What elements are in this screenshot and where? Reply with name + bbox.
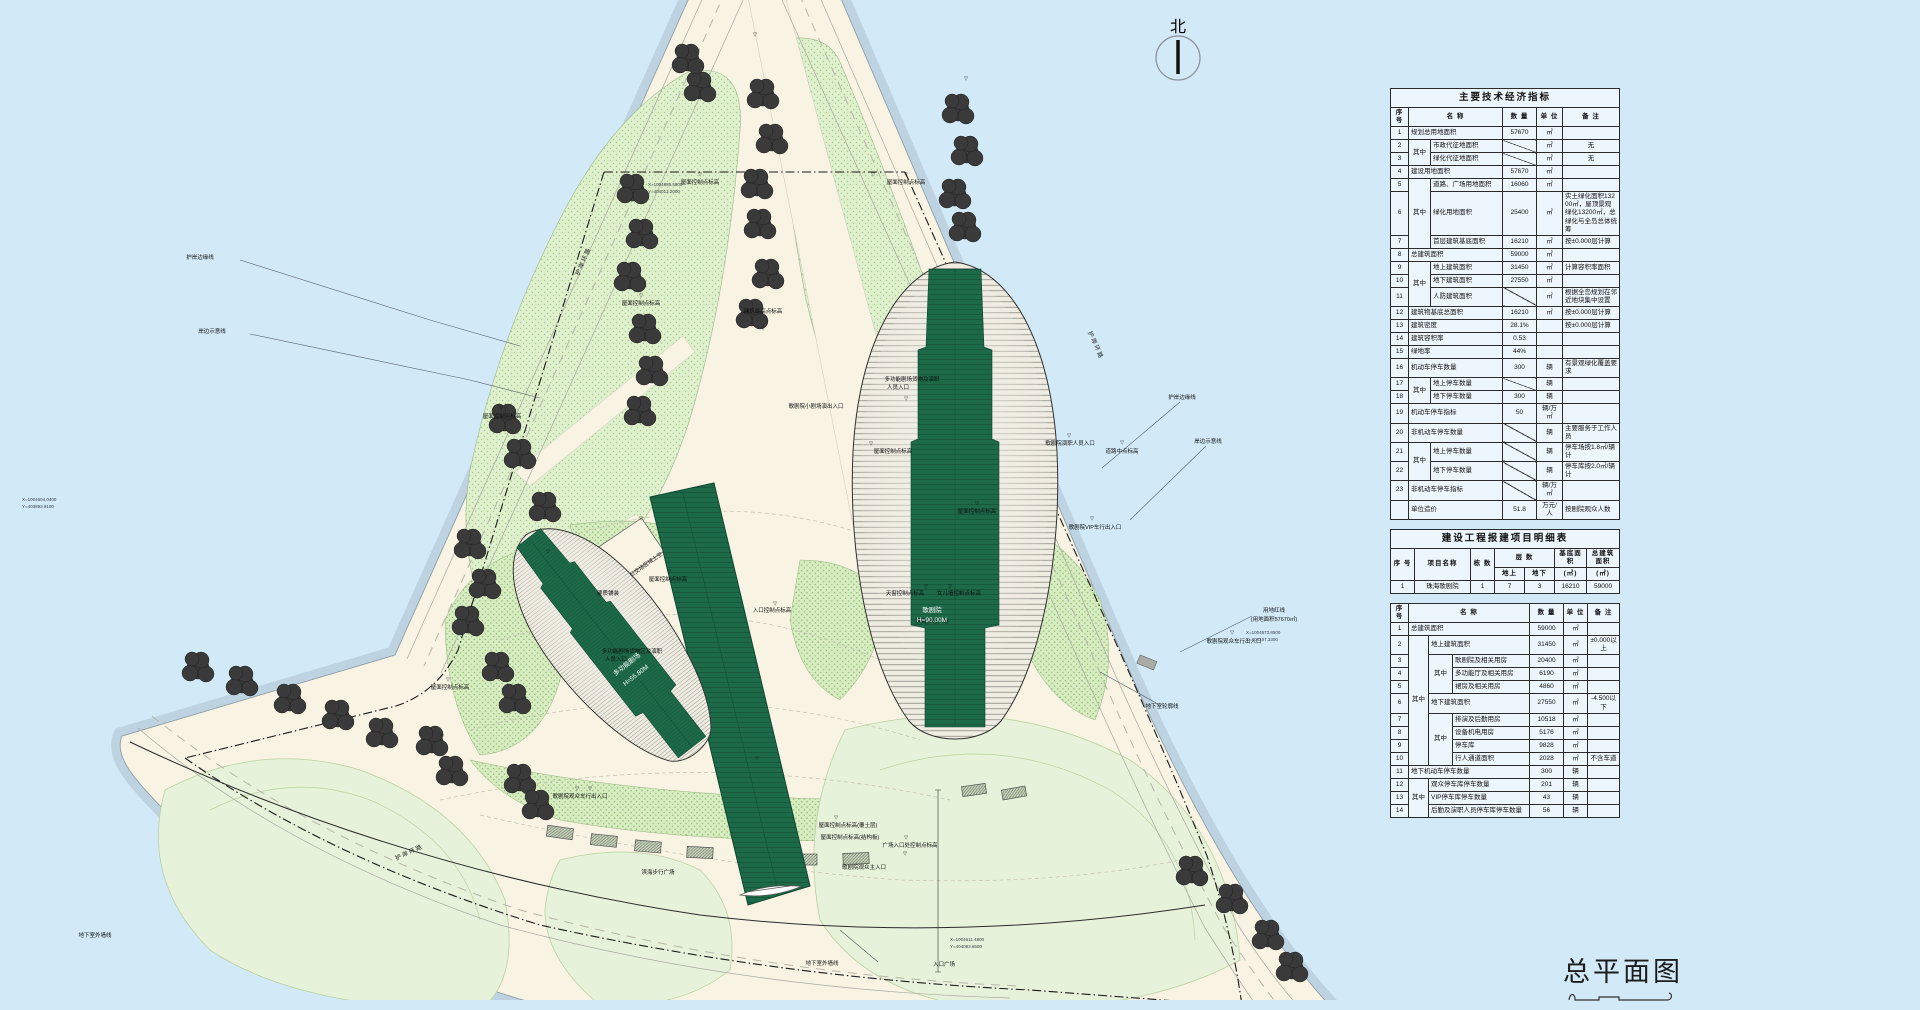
plan-label: 屋面控制点标高(覆土层) (819, 821, 878, 829)
table-cell: 地下建筑面积 (1429, 694, 1530, 713)
table-cell: 按剧院观众人数 (1563, 500, 1620, 519)
plan-label: Y=403893.9100 (22, 504, 54, 509)
table-cell: 13 (1391, 320, 1409, 333)
table-cell (1588, 623, 1620, 636)
table-cell: 建设用地面积 (1409, 166, 1503, 179)
table-cell: 单 位 (1564, 603, 1588, 622)
table-cell: 12 (1391, 307, 1409, 320)
table-cell: ㎡ (1564, 726, 1588, 739)
table-cell: ㎡ (1537, 127, 1563, 140)
table-cell: 1 (1471, 580, 1495, 593)
north-arrow: 北 (1156, 18, 1200, 80)
table-cell: 规划总用地面积 (1409, 127, 1503, 140)
table-cell (1563, 404, 1620, 423)
elevation-marker: ▽ (588, 786, 592, 792)
table-cell: 绿化用地面积 (1431, 192, 1503, 236)
table-cell: 辆 (1537, 359, 1563, 378)
plan-label: 道路中点标高 (1105, 447, 1139, 455)
table-cell: 19 (1391, 404, 1409, 423)
elevation-marker: ▽ (753, 32, 757, 38)
plan-label: H=90.00M (917, 617, 947, 624)
table-cell (1503, 481, 1537, 500)
table-cell: ㎡ (1564, 655, 1588, 668)
table-cell: 计算容积率面积 (1563, 261, 1620, 274)
table-cell: 实土绿化面积13200㎡，屋顶景观绿化13200㎡，总绿化与全岛总体统筹 (1563, 192, 1620, 236)
elevation-marker: ▽ (761, 326, 765, 332)
elevation-marker: ▽ (1120, 440, 1124, 446)
table-cell: 59000 (1530, 623, 1564, 636)
table-cell: 地下停车数量 (1431, 391, 1503, 404)
table-cell: 27550 (1530, 694, 1564, 713)
table-cell: 16210 (1503, 307, 1537, 320)
indicator-tables: 主要技术经济指标序 号名 称数 量单 位备 注1规划总用地面积57670㎡2其中… (1390, 88, 1620, 827)
plan-label: 入口控制点标高 (753, 606, 792, 614)
area-breakdown-table: 序 号名 称数 量单 位备 注1总建筑面积59000㎡2其中地上建筑面积3145… (1390, 603, 1620, 818)
table-cell: 20 (1391, 423, 1409, 442)
table-title: 主要技术经济指标 (1391, 89, 1620, 108)
elevation-marker: ▽ (834, 815, 838, 821)
table-cell: 数 量 (1530, 603, 1564, 622)
table-cell: 层 数 (1495, 548, 1555, 567)
table-cell (1563, 127, 1620, 140)
plan-label: 歌剧院VIP车行出入口 (1069, 523, 1122, 531)
elevation-marker: ▽ (903, 851, 907, 857)
table-cell: 18 (1391, 391, 1409, 404)
plan-label: X=1004604.0400 (22, 497, 57, 502)
table-cell: 有景观绿化覆盖要求 (1563, 359, 1620, 378)
plan-label: 女儿墙控制点标高 (937, 589, 982, 597)
plan-label: (用地面积57670㎡) (1251, 615, 1298, 623)
table-cell: 2 (1391, 140, 1409, 153)
table-cell: 6190 (1530, 668, 1564, 681)
table-cell: 其中 (1409, 140, 1431, 166)
drawing-title: 总平面图 (1563, 950, 1683, 989)
table-cell: 设备机电用房 (1453, 726, 1530, 739)
north-label: 北 (1170, 18, 1186, 36)
main-indicators-table: 主要技术经济指标序 号名 称数 量单 位备 注1规划总用地面积57670㎡2其中… (1390, 88, 1620, 520)
table-cell: 1 (1391, 580, 1415, 593)
table-cell: 辆 (1564, 765, 1588, 778)
table-cell: 其中 (1429, 655, 1453, 694)
table-cell: 20400 (1530, 655, 1564, 668)
plan-label: 地下室外墙线 (78, 931, 112, 939)
table-cell: 16210 (1503, 235, 1537, 248)
table-cell: 观众停车库停车数量 (1429, 778, 1530, 791)
plan-label: 滨海步行广场 (641, 868, 675, 876)
plan-label: 地下室外墙线 (805, 959, 839, 967)
table-cell: 59000 (1587, 580, 1620, 593)
table-cell: 首层建筑基底面积 (1431, 235, 1503, 248)
table-cell: ㎡ (1564, 739, 1588, 752)
title-block: 总平面图 (1563, 950, 1683, 1010)
table-cell (1588, 726, 1620, 739)
table-cell: ㎡ (1537, 287, 1563, 306)
table-cell: 根据全岛规划在邻近地块集中设置 (1563, 287, 1620, 306)
table-cell: 栋 数 (1471, 548, 1495, 580)
table-cell: 6 (1391, 694, 1409, 713)
table-cell: 15 (1391, 346, 1409, 359)
table-cell: 其中 (1429, 713, 1453, 765)
plan-label: 屋面控制点标高 (649, 575, 688, 583)
table-cell (1563, 378, 1620, 391)
table-cell: 27550 (1503, 274, 1537, 287)
table-cell: 22 (1391, 462, 1409, 481)
table-cell: 单 位 (1537, 107, 1563, 126)
elevation-marker: ▽ (773, 601, 777, 607)
table-cell: 辆 (1537, 423, 1563, 442)
plan-label: Y=404013.2000 (648, 189, 680, 194)
table-cell: 辆 (1537, 462, 1563, 481)
table-cell: 停车场按1.8㎡/辆计 (1563, 442, 1620, 461)
table-cell: 21 (1391, 442, 1409, 461)
table-cell: 地下机动车停车数量 (1409, 765, 1530, 778)
table-cell (1588, 713, 1620, 726)
table-cell: 停车库按2.0㎡/辆计 (1563, 462, 1620, 481)
table-cell (1563, 333, 1620, 346)
elevation-marker: ▽ (1090, 516, 1094, 522)
table-cell: 10 (1391, 274, 1409, 287)
table-cell (1588, 681, 1620, 694)
table-cell: 地上建筑面积 (1431, 261, 1503, 274)
elevation-marker: ▽ (667, 569, 671, 575)
elevation-marker: ▽ (975, 501, 979, 507)
table-cell: 辆/万㎡ (1537, 481, 1563, 500)
table-cell: 9 (1391, 261, 1409, 274)
table-cell: 51.8 (1503, 500, 1537, 519)
table-cell: ㎡ (1537, 179, 1563, 192)
elevation-marker: ▽ (1067, 433, 1071, 439)
elevation-marker: ▽ (924, 584, 928, 590)
table-cell: 后勤及演职人员停车库停车数量 (1429, 804, 1530, 817)
table-cell: 基底面积 (1555, 548, 1587, 567)
plan-label: 天窗控制点标高 (886, 589, 925, 597)
elevation-marker: ▽ (871, 172, 875, 178)
table-cell (1588, 668, 1620, 681)
table-cell: 10 (1391, 752, 1409, 765)
table-cell: 300 (1530, 765, 1564, 778)
plan-label: 用地红线 (1263, 606, 1286, 614)
table-cell: 11 (1391, 287, 1409, 306)
elevation-marker: ▽ (698, 172, 702, 178)
table-cell: 地上建筑面积 (1429, 636, 1530, 655)
table-cell: (㎡) (1555, 567, 1587, 580)
table-cell: 主要服务于工作人员 (1563, 423, 1620, 442)
table-cell (1503, 287, 1537, 306)
table-cell: 3 (1391, 655, 1409, 668)
plan-label: X=1004885.5800 (648, 182, 683, 187)
table-cell: 万元/人 (1537, 500, 1563, 519)
table-cell: 项目名称 (1415, 548, 1471, 580)
table-cell: 名 称 (1409, 603, 1530, 622)
table-cell: 辆 (1564, 804, 1588, 817)
table-cell: 14 (1391, 804, 1409, 817)
table-cell: 名 称 (1409, 107, 1503, 126)
table-cell: 建筑容积率 (1409, 333, 1503, 346)
table-cell: 备 注 (1563, 107, 1620, 126)
table-cell: 9828 (1530, 739, 1564, 752)
table-cell: 59000 (1503, 248, 1537, 261)
table-cell (1563, 179, 1620, 192)
plan-label: 歌剧院小剧场演出入口 (788, 402, 843, 410)
table-cell: 其中 (1409, 442, 1431, 481)
table-cell: 6 (1391, 192, 1409, 236)
plan-label: 屋面控制点标高 (622, 299, 661, 307)
plan-label: 屋面控制点标高 (483, 412, 522, 420)
table-cell: 其中 (1409, 261, 1431, 306)
plan-label: X=1004611.4800 (950, 937, 985, 942)
table-cell: 序 号 (1391, 603, 1409, 622)
table-cell: 排演及后勤用房 (1453, 713, 1530, 726)
plan-label: 建筑最高点标高 (744, 307, 783, 315)
table-cell: ㎡ (1537, 307, 1563, 320)
elevation-marker: ▽ (575, 786, 579, 792)
plan-label: 屋面控制点标高(结构板) (821, 833, 880, 841)
table-cell: 总建筑面积 (1409, 623, 1530, 636)
plan-label: 歌剧院观众主入口 (842, 863, 886, 871)
table-cell: 其中 (1409, 778, 1429, 817)
table-cell: 辆/万㎡ (1537, 404, 1563, 423)
table-cell: 57670 (1503, 127, 1537, 140)
table-cell: 3 (1391, 153, 1409, 166)
lawn (545, 852, 732, 1000)
table-cell: 0.53 (1503, 333, 1537, 346)
table-cell: 总建筑面积 (1409, 248, 1503, 261)
table-cell: 7 (1391, 713, 1409, 726)
table-cell: 10518 (1530, 713, 1564, 726)
table-cell (1503, 462, 1537, 481)
table-cell: 44% (1503, 346, 1537, 359)
table-cell: ㎡ (1564, 713, 1588, 726)
table-title: 建设工程报建项目明细表 (1391, 529, 1620, 548)
plan-label: 岸边示意线 (198, 327, 226, 335)
table-cell: 3 (1525, 580, 1555, 593)
table-cell: 28.1% (1503, 320, 1537, 333)
table-cell: 5 (1391, 179, 1409, 192)
elevation-marker: ▽ (904, 172, 908, 178)
table-cell: 无 (1563, 140, 1620, 153)
table-cell: 非机动车停车数量 (1409, 423, 1503, 442)
table-cell: 23 (1391, 481, 1409, 500)
table-cell: 人防建筑面积 (1431, 287, 1503, 306)
table-cell: 地上停车数量 (1431, 442, 1503, 461)
elevation-marker: ▽ (440, 734, 444, 740)
elevation-marker: ▽ (639, 516, 643, 522)
table-cell: 地上 (1495, 567, 1525, 580)
table-cell: ±0.000以上 (1588, 636, 1620, 655)
table-cell: 12 (1391, 778, 1409, 791)
table-cell (1391, 500, 1409, 519)
table-cell: 2028 (1530, 752, 1564, 765)
table-cell: 不含车道 (1588, 752, 1620, 765)
plan-label: 屋面控制点标高 (958, 507, 997, 515)
table-cell (1588, 778, 1620, 791)
plan-label: 屋面控制点标高 (681, 178, 720, 186)
table-cell: 300 (1503, 359, 1537, 378)
table-cell: 总建筑面积 (1587, 548, 1620, 567)
table-cell: ㎡ (1564, 752, 1588, 765)
table-cell: 201 (1530, 778, 1564, 791)
table-cell (1588, 791, 1620, 804)
table-cell: 地下建筑面积 (1431, 274, 1503, 287)
table-cell (1537, 346, 1563, 359)
table-cell: 7 (1495, 580, 1525, 593)
plan-label: Y=404083.6500 (950, 944, 982, 949)
table-cell: 其中 (1409, 179, 1431, 249)
table-cell: 其中 (1409, 378, 1431, 404)
plan-label: 歌剧院 (922, 605, 942, 614)
table-cell (1503, 442, 1537, 461)
table-cell: 4 (1391, 668, 1409, 681)
table-cell: ㎡ (1564, 668, 1588, 681)
table-cell: 31450 (1530, 636, 1564, 655)
table-cell (1537, 320, 1563, 333)
table-cell: 1 (1391, 127, 1409, 140)
plan-label: 屋面控制点标高 (874, 447, 913, 455)
table-cell (1563, 481, 1620, 500)
table-cell: ㎡ (1564, 623, 1588, 636)
table-cell: 4 (1391, 166, 1409, 179)
table-cell: 57670 (1503, 166, 1537, 179)
table-cell (1503, 140, 1537, 153)
table-cell: 辆 (1564, 791, 1588, 804)
table-cell: 地下停车数量 (1431, 462, 1503, 481)
table-cell (1503, 378, 1537, 391)
table-cell: 辆 (1537, 378, 1563, 391)
table-cell: 其中 (1409, 636, 1429, 766)
table-cell (1563, 346, 1620, 359)
table-cell: 数 量 (1503, 107, 1537, 126)
table-cell: 按±0.000层计算 (1563, 235, 1620, 248)
table-cell: ㎡ (1537, 166, 1563, 179)
plan-label: 护岸边缘线 (186, 253, 214, 261)
table-cell: ㎡ (1537, 192, 1563, 236)
plan-label: 人员入口 (887, 384, 909, 391)
site-plan: ▽▽▽▽▽▽▽▽▽▽▽▽▽▽▽▽▽▽▽▽▽▽▽▽▽▽▽▽▽ 屋面控制点标高屋面控… (0, 0, 1345, 1000)
table-cell (1563, 248, 1620, 261)
table-cell (1503, 153, 1537, 166)
table-cell: 裙房及相关用房 (1453, 681, 1530, 694)
table-cell: 16060 (1503, 179, 1537, 192)
table-cell: 5176 (1530, 726, 1564, 739)
table-cell: 序 号 (1391, 548, 1415, 580)
table-cell: ㎡ (1564, 636, 1588, 655)
drawing-sheet: { "title_block": { "title": "总平面图" }, "n… (0, 0, 1920, 1000)
table-cell: 歌剧院及相关用房 (1453, 655, 1530, 668)
elevation-marker: ▽ (446, 677, 450, 683)
table-cell: 多功能厅及相关用房 (1453, 668, 1530, 681)
table-cell: 8 (1391, 248, 1409, 261)
elevation-marker: ▽ (948, 584, 952, 590)
plan-label: 护岸边缘线 (1168, 393, 1196, 401)
table-cell: 绿化代征地面积 (1431, 153, 1503, 166)
table-cell: 43 (1530, 791, 1564, 804)
plan-label: 多功能剧场货物区及演职 (602, 647, 663, 655)
table-cell: 非机动车停车指标 (1409, 481, 1503, 500)
table-cell: (㎡) (1587, 567, 1620, 580)
table-cell: 50 (1503, 404, 1537, 423)
table-cell (1563, 391, 1620, 404)
elevation-marker: ▽ (964, 76, 968, 82)
table-cell: ㎡ (1537, 274, 1563, 287)
table-cell: 300 (1503, 391, 1537, 404)
table-cell: 行人通道面积 (1453, 752, 1530, 765)
shelter (1137, 655, 1157, 670)
table-cell: ㎡ (1537, 153, 1563, 166)
elevation-marker: ▽ (499, 406, 503, 412)
table-cell: 绿地率 (1409, 346, 1503, 359)
opera-shell (852, 262, 1057, 739)
table-cell: 单位造价 (1409, 500, 1503, 519)
elevation-marker: ▽ (755, 756, 759, 762)
table-cell: ㎡ (1537, 140, 1563, 153)
table-cell: 14 (1391, 333, 1409, 346)
table-cell (1563, 274, 1620, 287)
table-cell: 31450 (1503, 261, 1537, 274)
table-cell: 市政代征地面积 (1431, 140, 1503, 153)
table-cell: ㎡ (1564, 681, 1588, 694)
table-cell: ㎡ (1537, 261, 1563, 274)
elevation-marker: ▽ (1230, 630, 1234, 636)
plan-label: 多功能剧场货物及演职 (884, 375, 940, 383)
table-cell (1588, 739, 1620, 752)
elevation-marker: ▽ (904, 835, 908, 841)
plan-label: X=1004673.8500 (1246, 630, 1281, 635)
plan-label: 硬质铺装 (597, 589, 620, 597)
table-cell: 辆 (1537, 391, 1563, 404)
project-detail-table: 建设工程报建项目明细表序 号项目名称栋 数层 数基底面积总建筑面积地上地下(㎡)… (1390, 529, 1620, 594)
table-cell: 5 (1391, 681, 1409, 694)
plan-label: 广场入口处控制点标高 (882, 841, 938, 849)
table-cell: ㎡ (1537, 235, 1563, 248)
elevation-marker: ▽ (904, 396, 908, 402)
table-cell: 16 (1391, 359, 1409, 378)
plan-label: 入口广场 (933, 960, 956, 968)
plan-label: 地下室轮廓线 (1145, 702, 1179, 710)
table-cell: 机动车停车数量 (1409, 359, 1503, 378)
elevation-marker: ▽ (546, 549, 550, 555)
table-cell: ㎡ (1564, 694, 1588, 713)
table-cell: 9 (1391, 739, 1409, 752)
table-cell: 建筑物基底总面积 (1409, 307, 1503, 320)
table-cell: 按±0.000层计算 (1563, 307, 1620, 320)
table-cell: 道路、广场用地面积 (1431, 179, 1503, 192)
table-cell (1588, 804, 1620, 817)
table-cell: 地下 (1525, 567, 1555, 580)
table-cell: 7 (1391, 235, 1409, 248)
table-cell: 13 (1391, 791, 1409, 804)
table-cell: 无 (1563, 153, 1620, 166)
table-cell: 辆 (1564, 778, 1588, 791)
table-cell: 机动车停车指标 (1409, 404, 1503, 423)
table-cell: 56 (1530, 804, 1564, 817)
table-cell (1503, 423, 1537, 442)
table-cell (1563, 166, 1620, 179)
plan-label: 歌剧院演职人员入口 (1045, 439, 1095, 447)
table-cell: 序 号 (1391, 107, 1409, 126)
scale-bar (1563, 989, 1683, 1005)
table-cell: 辆 (1537, 442, 1563, 461)
table-cell: 停车库 (1453, 739, 1530, 752)
table-cell: 按±0.000层计算 (1563, 320, 1620, 333)
table-cell: 11 (1391, 765, 1409, 778)
table-cell: ㎡ (1537, 248, 1563, 261)
table-cell: 地上停车数量 (1431, 378, 1503, 391)
elevation-marker: ▽ (639, 293, 643, 299)
table-cell (1537, 333, 1563, 346)
table-cell: 16210 (1555, 580, 1587, 593)
plan-label: 歌剧院观众车行出入口 (552, 792, 607, 800)
table-cell: 4860 (1530, 681, 1564, 694)
